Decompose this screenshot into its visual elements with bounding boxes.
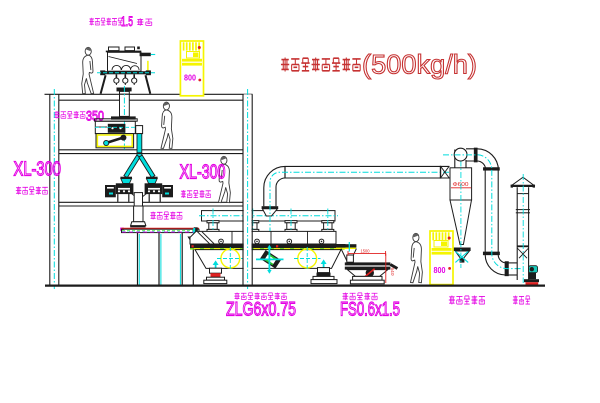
svg-text:1.5: 1.5 — [121, 14, 133, 29]
svg-text:XL-300: XL-300 — [14, 159, 62, 181]
svg-text:1500: 1500 — [361, 248, 370, 253]
svg-text:800: 800 — [434, 265, 446, 275]
svg-text:FS0.6x1.5: FS0.6x1.5 — [340, 300, 400, 321]
svg-text:ZLG6x0.75: ZLG6x0.75 — [226, 300, 296, 321]
svg-text:800: 800 — [184, 73, 196, 83]
svg-text:XL-300: XL-300 — [180, 162, 226, 184]
svg-text:540: 540 — [390, 268, 395, 277]
svg-text:(500kg/h): (500kg/h) — [362, 50, 477, 80]
